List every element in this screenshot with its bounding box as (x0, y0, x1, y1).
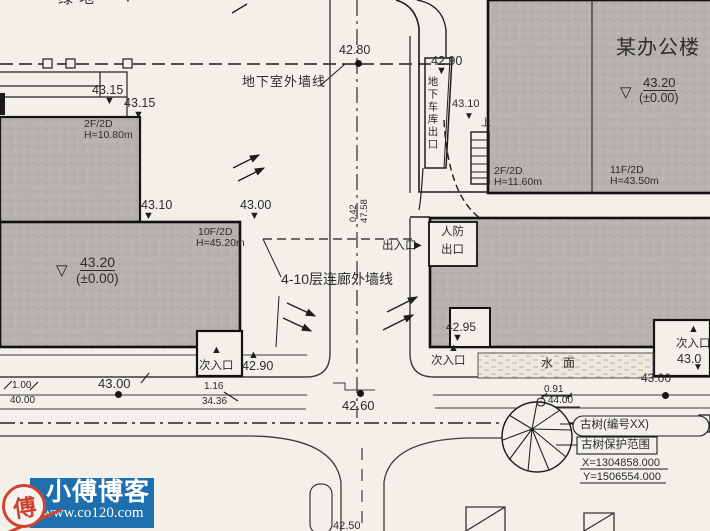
coord-x: X=1304858.000 (582, 458, 660, 469)
civil-defense-line2: 出口 (441, 245, 464, 257)
level-marker: ▼ (249, 211, 260, 222)
entrance-marker: ▲ (688, 324, 699, 335)
civil-defense-line1: 人防 (441, 227, 464, 239)
elevation-dot (357, 390, 364, 397)
elev-42-90-bottom: 42.90 (242, 360, 273, 373)
entrance-left-label: 次入口 (199, 361, 234, 373)
bldg-r-floors: 11F/2D (610, 165, 644, 176)
elev-43-00-right: 43.00 (641, 372, 671, 384)
green-area-label: 绿地 (58, 0, 100, 6)
entrance-marker: ▲ (211, 345, 222, 356)
watermark-seal-logo: 傅 (2, 484, 46, 528)
entrance-center-label: 次入口 (431, 356, 466, 368)
bldg-a-floors: 2F/2D (84, 119, 113, 130)
level-43-20-right: 43.20 (643, 76, 676, 91)
entrance-right-label: 次入口 (676, 339, 710, 351)
annex-height: H=11.60m (494, 177, 542, 188)
site-plan-drawing: 绿地43.1543.152F/2DH=10.80m43.1043.0010F/2… (0, 0, 710, 531)
level-symbol: ▽ (56, 263, 68, 278)
bldg-b-height: H=45.20m (196, 238, 245, 249)
elev-42-80: 42.80 (339, 44, 370, 57)
level-marker: ▼ (693, 363, 703, 373)
elev-42-50: 42.50 (333, 521, 361, 531)
office-building-name: 某办公楼 (616, 38, 700, 58)
level-marker: ▼ (122, 0, 134, 4)
level-pm000-left: (±0.00) (76, 272, 119, 286)
entrance-arrow: ▶ (414, 241, 422, 251)
elev-43-00-road: 43.00 (98, 377, 131, 390)
watermark: 小傅博客 www.co120.com 傅 (0, 470, 260, 531)
water-surface-label: 水面 (541, 357, 585, 369)
dim-1-16: 1.16 (204, 382, 223, 392)
dim-34-36: 34.36 (202, 397, 227, 407)
entrance-marker: ▲ (248, 350, 259, 361)
bldg-a-height: H=10.80m (84, 130, 133, 141)
annotation-layer: 绿地43.1543.152F/2DH=10.80m43.1043.0010F/2… (0, 0, 710, 531)
elev-42-60: 42.60 (342, 399, 375, 412)
ancient-tree-label: 古树(编号XX) (580, 420, 649, 432)
entrance-exit-label: 出入口 (382, 241, 417, 253)
dim-1-00: 1.00 (12, 381, 31, 391)
elev-43-15-b: 43.15 (124, 97, 155, 110)
level-marker: ▼ (436, 66, 447, 77)
annex-floors: 2F/2D (494, 166, 523, 177)
basement-wall-label: 地下室外墙线 (242, 75, 326, 88)
level-marker: ▼ (143, 211, 154, 222)
level-symbol: ▽ (620, 85, 632, 100)
watermark-seal-character: 傅 (10, 488, 38, 525)
level-marker: ▼ (133, 110, 144, 121)
watermark-blog-name: 小傅博客 (46, 479, 154, 505)
dim-0-42: 0.42 (349, 204, 358, 222)
tree-protect-label: 古树保护范围 (581, 440, 650, 452)
level-marker: ▼ (104, 96, 115, 107)
dim-0-91: 0.91 (544, 385, 563, 395)
elevation-dot (355, 60, 362, 67)
corridor-wall-label: 4-10层连廊外墙线 (281, 272, 393, 286)
entrance-marker: ▲ (448, 343, 459, 354)
dim-40-00: 40.00 (10, 396, 35, 406)
dim-47-58: 47.58 (360, 199, 370, 223)
garage-exit-label: 地下车库出口 (427, 76, 438, 151)
elev-43-10-garage: 43.10 (452, 99, 480, 110)
coord-y: Y=1506554.000 (583, 472, 661, 483)
elevation-dot (662, 392, 669, 399)
level-marker: ▼ (464, 112, 474, 122)
up-label: 上 (481, 119, 491, 129)
level-pm000-right: (±0.00) (639, 92, 679, 105)
dim-44-00: 44.00 (548, 396, 573, 406)
bldg-b-floors: 10F/2D (198, 227, 232, 238)
watermark-banner: 小傅博客 www.co120.com (30, 478, 154, 528)
elevation-dot (115, 391, 122, 398)
level-43-20-left: 43.20 (80, 255, 115, 271)
bldg-r-height: H=43.50m (610, 176, 659, 187)
